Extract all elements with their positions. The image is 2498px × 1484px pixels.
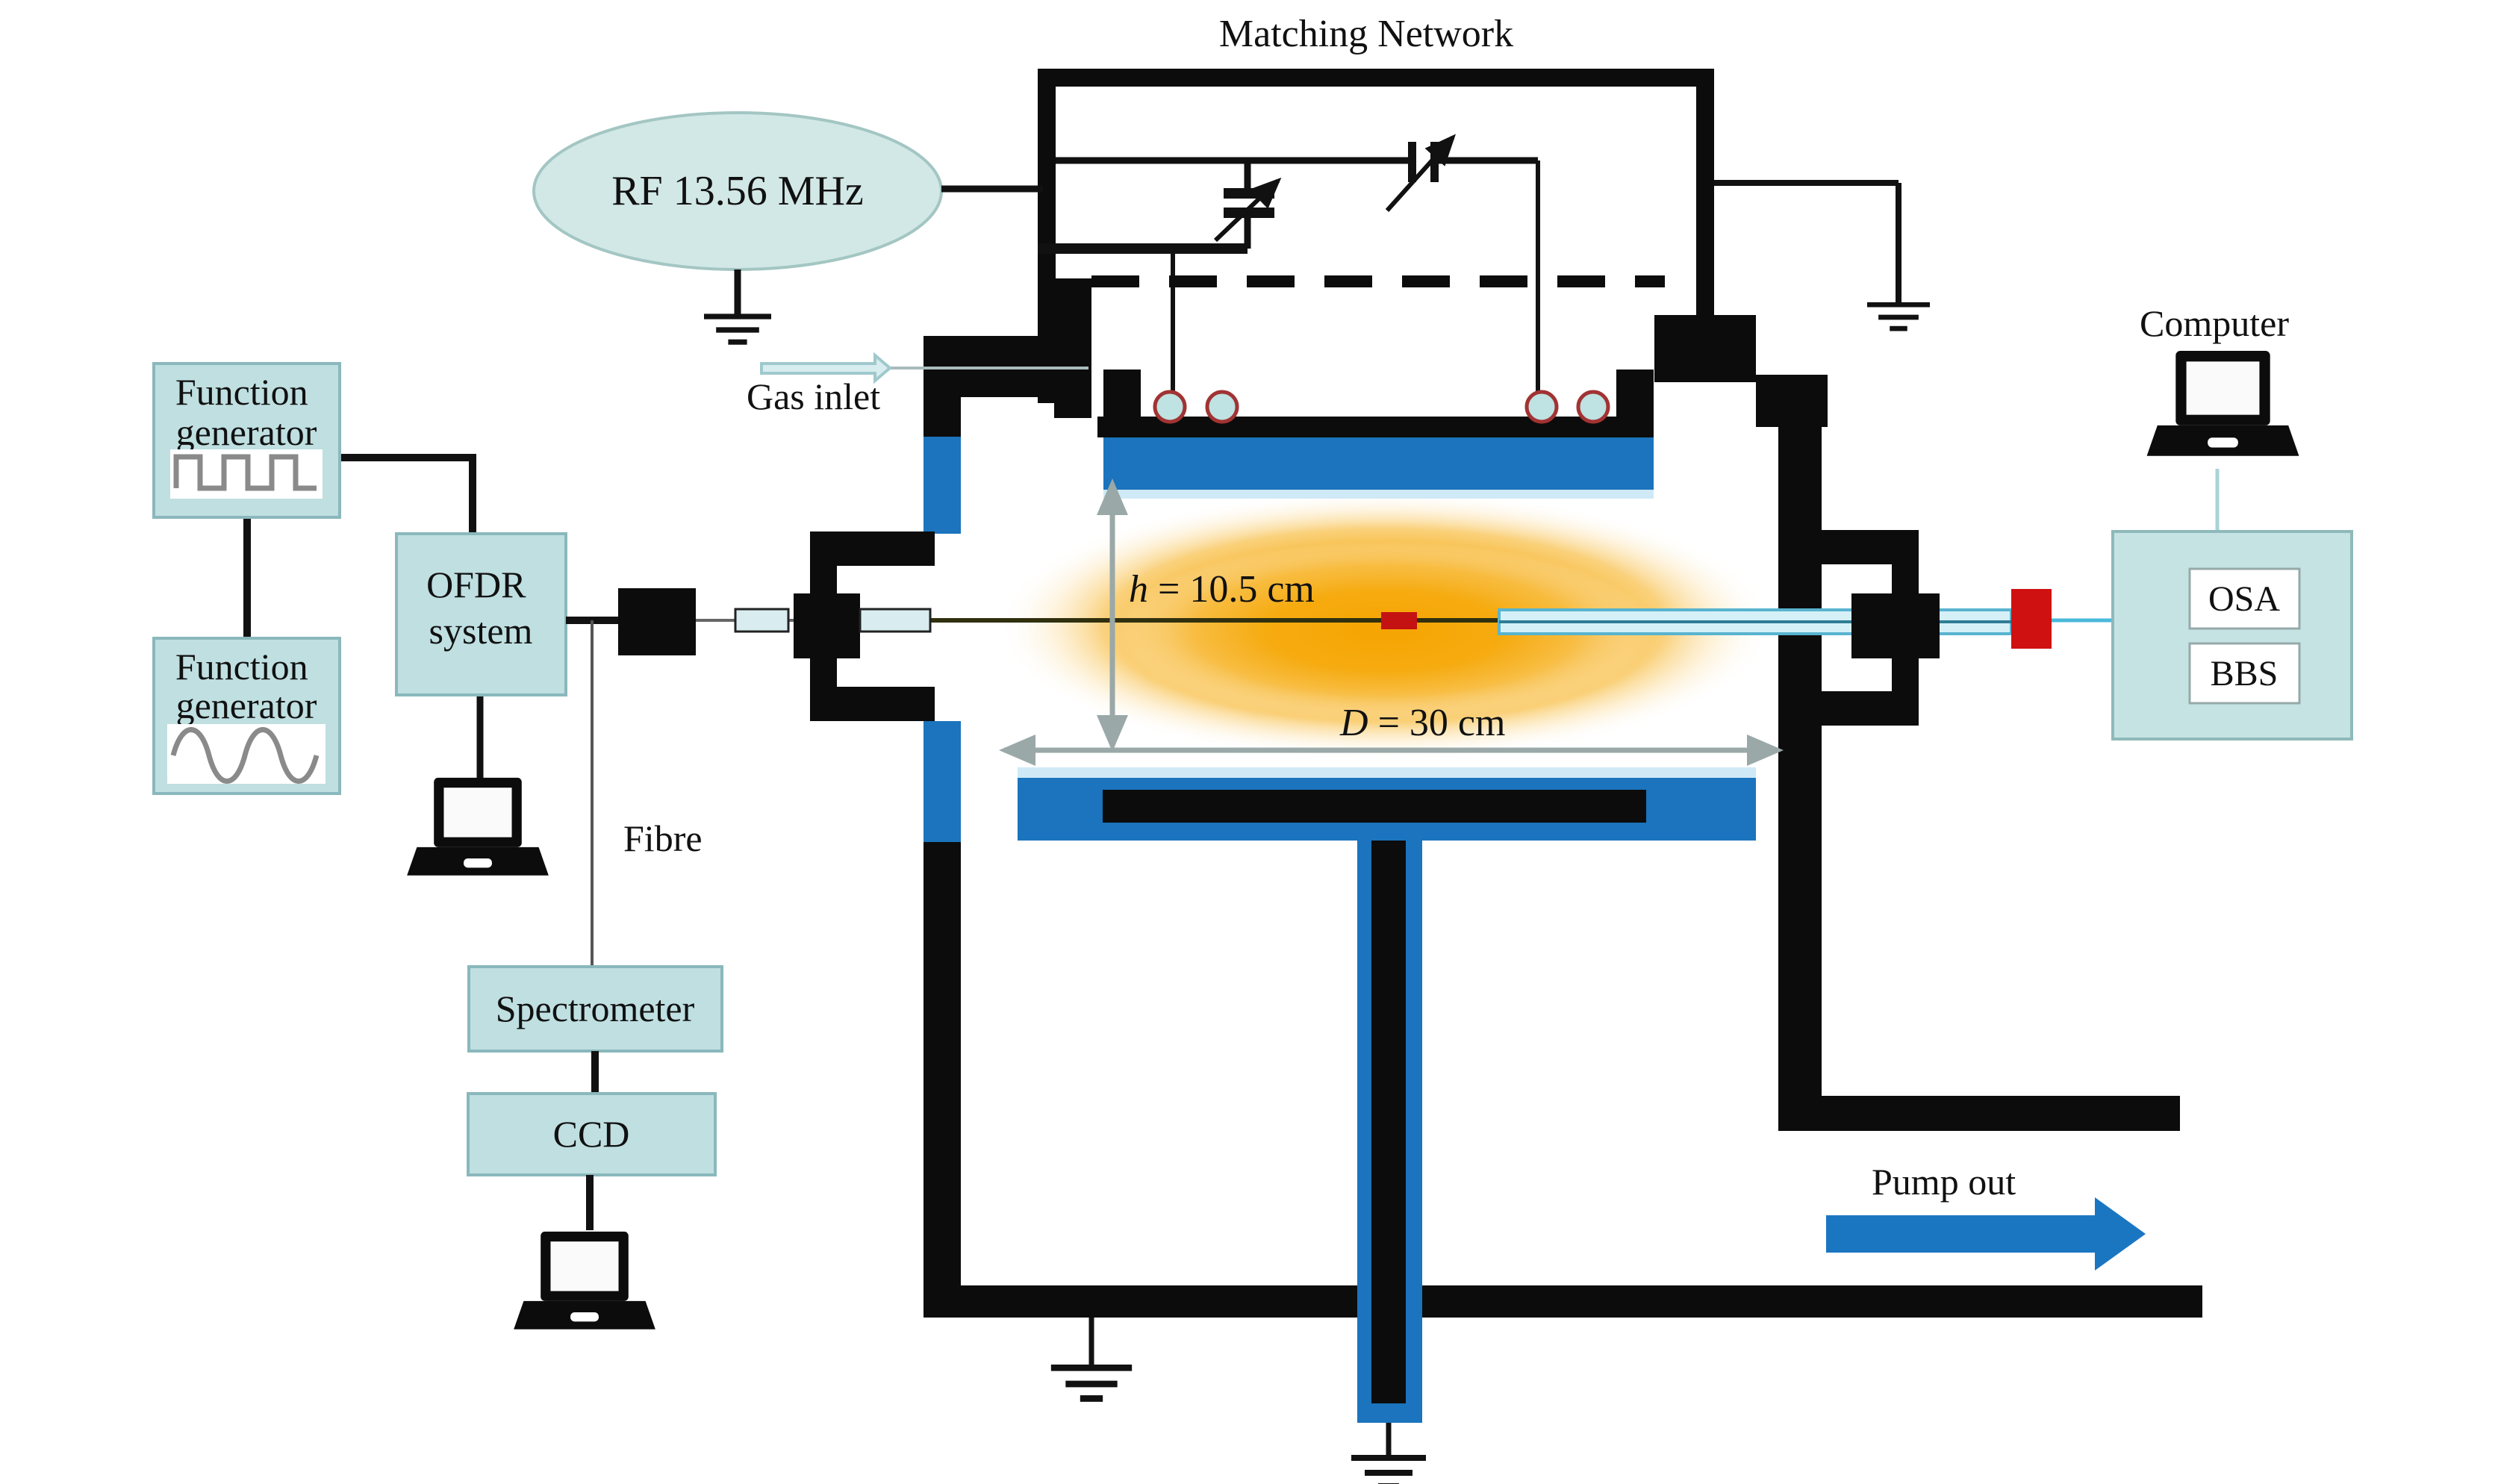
laptop-icon <box>407 778 549 876</box>
chamber-left-tower-notch <box>1054 397 1091 418</box>
top-electrode <box>1097 370 1654 499</box>
top-electrode-backing-plate <box>1097 417 1654 437</box>
ground-icon <box>1351 1458 1426 1484</box>
fibre-ferrule-outer <box>735 609 788 632</box>
fibre-ferrule-inner <box>860 609 930 632</box>
spectrometer-chain: Spectrometer CCD <box>468 967 722 1329</box>
variable-capacitor-icon <box>1387 137 1453 211</box>
fg1-to-ofdr-wire <box>340 458 473 534</box>
fibre-output-connector <box>2011 589 2052 649</box>
chamber-left-wall-bottom <box>923 842 961 1318</box>
fibre-connector-block <box>618 588 696 655</box>
pump-out: Pump out <box>1826 1161 2146 1271</box>
pump-out-arrow-icon <box>1826 1197 2146 1271</box>
electrode-insulator-icon <box>1578 392 1608 422</box>
chamber-right-wall <box>1778 377 1822 1131</box>
plasma-chamber-diagram: RF 13.56 MHz Matching Network <box>0 0 2498 1484</box>
electrode-insulator-icon <box>1155 392 1185 422</box>
matching-network-label: Matching Network <box>1219 13 1513 55</box>
gap-height-label: h = 10.5 cm <box>1129 568 1315 611</box>
bottom-electrode <box>1018 767 1756 1484</box>
function-generator-1-label: Function generator <box>175 371 317 453</box>
bottom-electrode-core <box>1103 790 1646 823</box>
pump-out-label: Pump out <box>1872 1161 2016 1203</box>
chamber-bottom-wall <box>923 1285 2202 1318</box>
analyzer-panel-box <box>2113 531 2352 739</box>
function-generator-2-label: Function generator <box>175 646 317 726</box>
chamber-left-wall-top <box>923 336 961 437</box>
top-electrode-plate <box>1103 437 1654 490</box>
matching-network <box>1038 69 1930 427</box>
return-wire <box>1038 243 1248 254</box>
fibre-label: Fibre <box>623 817 703 859</box>
chamber-left-wall-window-upper <box>923 437 961 534</box>
analyzer-panel: Computer OSA BBS <box>2113 302 2352 739</box>
top-electrode-sheath-strip <box>1103 490 1654 499</box>
matching-network-foot-right <box>1654 315 1756 382</box>
ground-icon <box>1051 1368 1132 1398</box>
bottom-electrode-sheath-strip <box>1018 767 1756 779</box>
left-instruments: Function generator Function generator OF… <box>154 364 566 876</box>
experimental-setup-figure: RF 13.56 MHz Matching Network <box>0 0 2498 1484</box>
computer-label: Computer <box>2140 302 2289 344</box>
electrode-insulator-icon <box>1207 392 1237 422</box>
rf-source: RF 13.56 MHz <box>534 113 1043 342</box>
ground-icon <box>704 317 771 342</box>
gas-inlet-label: Gas inlet <box>747 375 880 417</box>
ground-icon <box>1867 305 1930 328</box>
electrode-diameter-label: D = 30 cm <box>1339 702 1505 744</box>
ccd-label: CCD <box>553 1113 630 1155</box>
laptop-icon <box>2147 351 2299 456</box>
matching-network-box-right <box>1696 69 1714 315</box>
electrode-stem-core <box>1371 841 1406 1403</box>
chamber-left-wall-window-lower <box>923 721 961 842</box>
osa-label: OSA <box>2208 579 2280 619</box>
rf-source-label: RF 13.56 MHz <box>611 168 864 214</box>
spectrometer-label: Spectrometer <box>496 988 695 1029</box>
fbg-sensor <box>1381 612 1417 629</box>
bbs-label: BBS <box>2211 654 2279 693</box>
chamber-right-duct-stub <box>1778 1096 2180 1131</box>
matching-network-box-top <box>1038 69 1714 87</box>
laptop-icon <box>514 1232 655 1329</box>
electrode-insulator-icon <box>1527 392 1557 422</box>
